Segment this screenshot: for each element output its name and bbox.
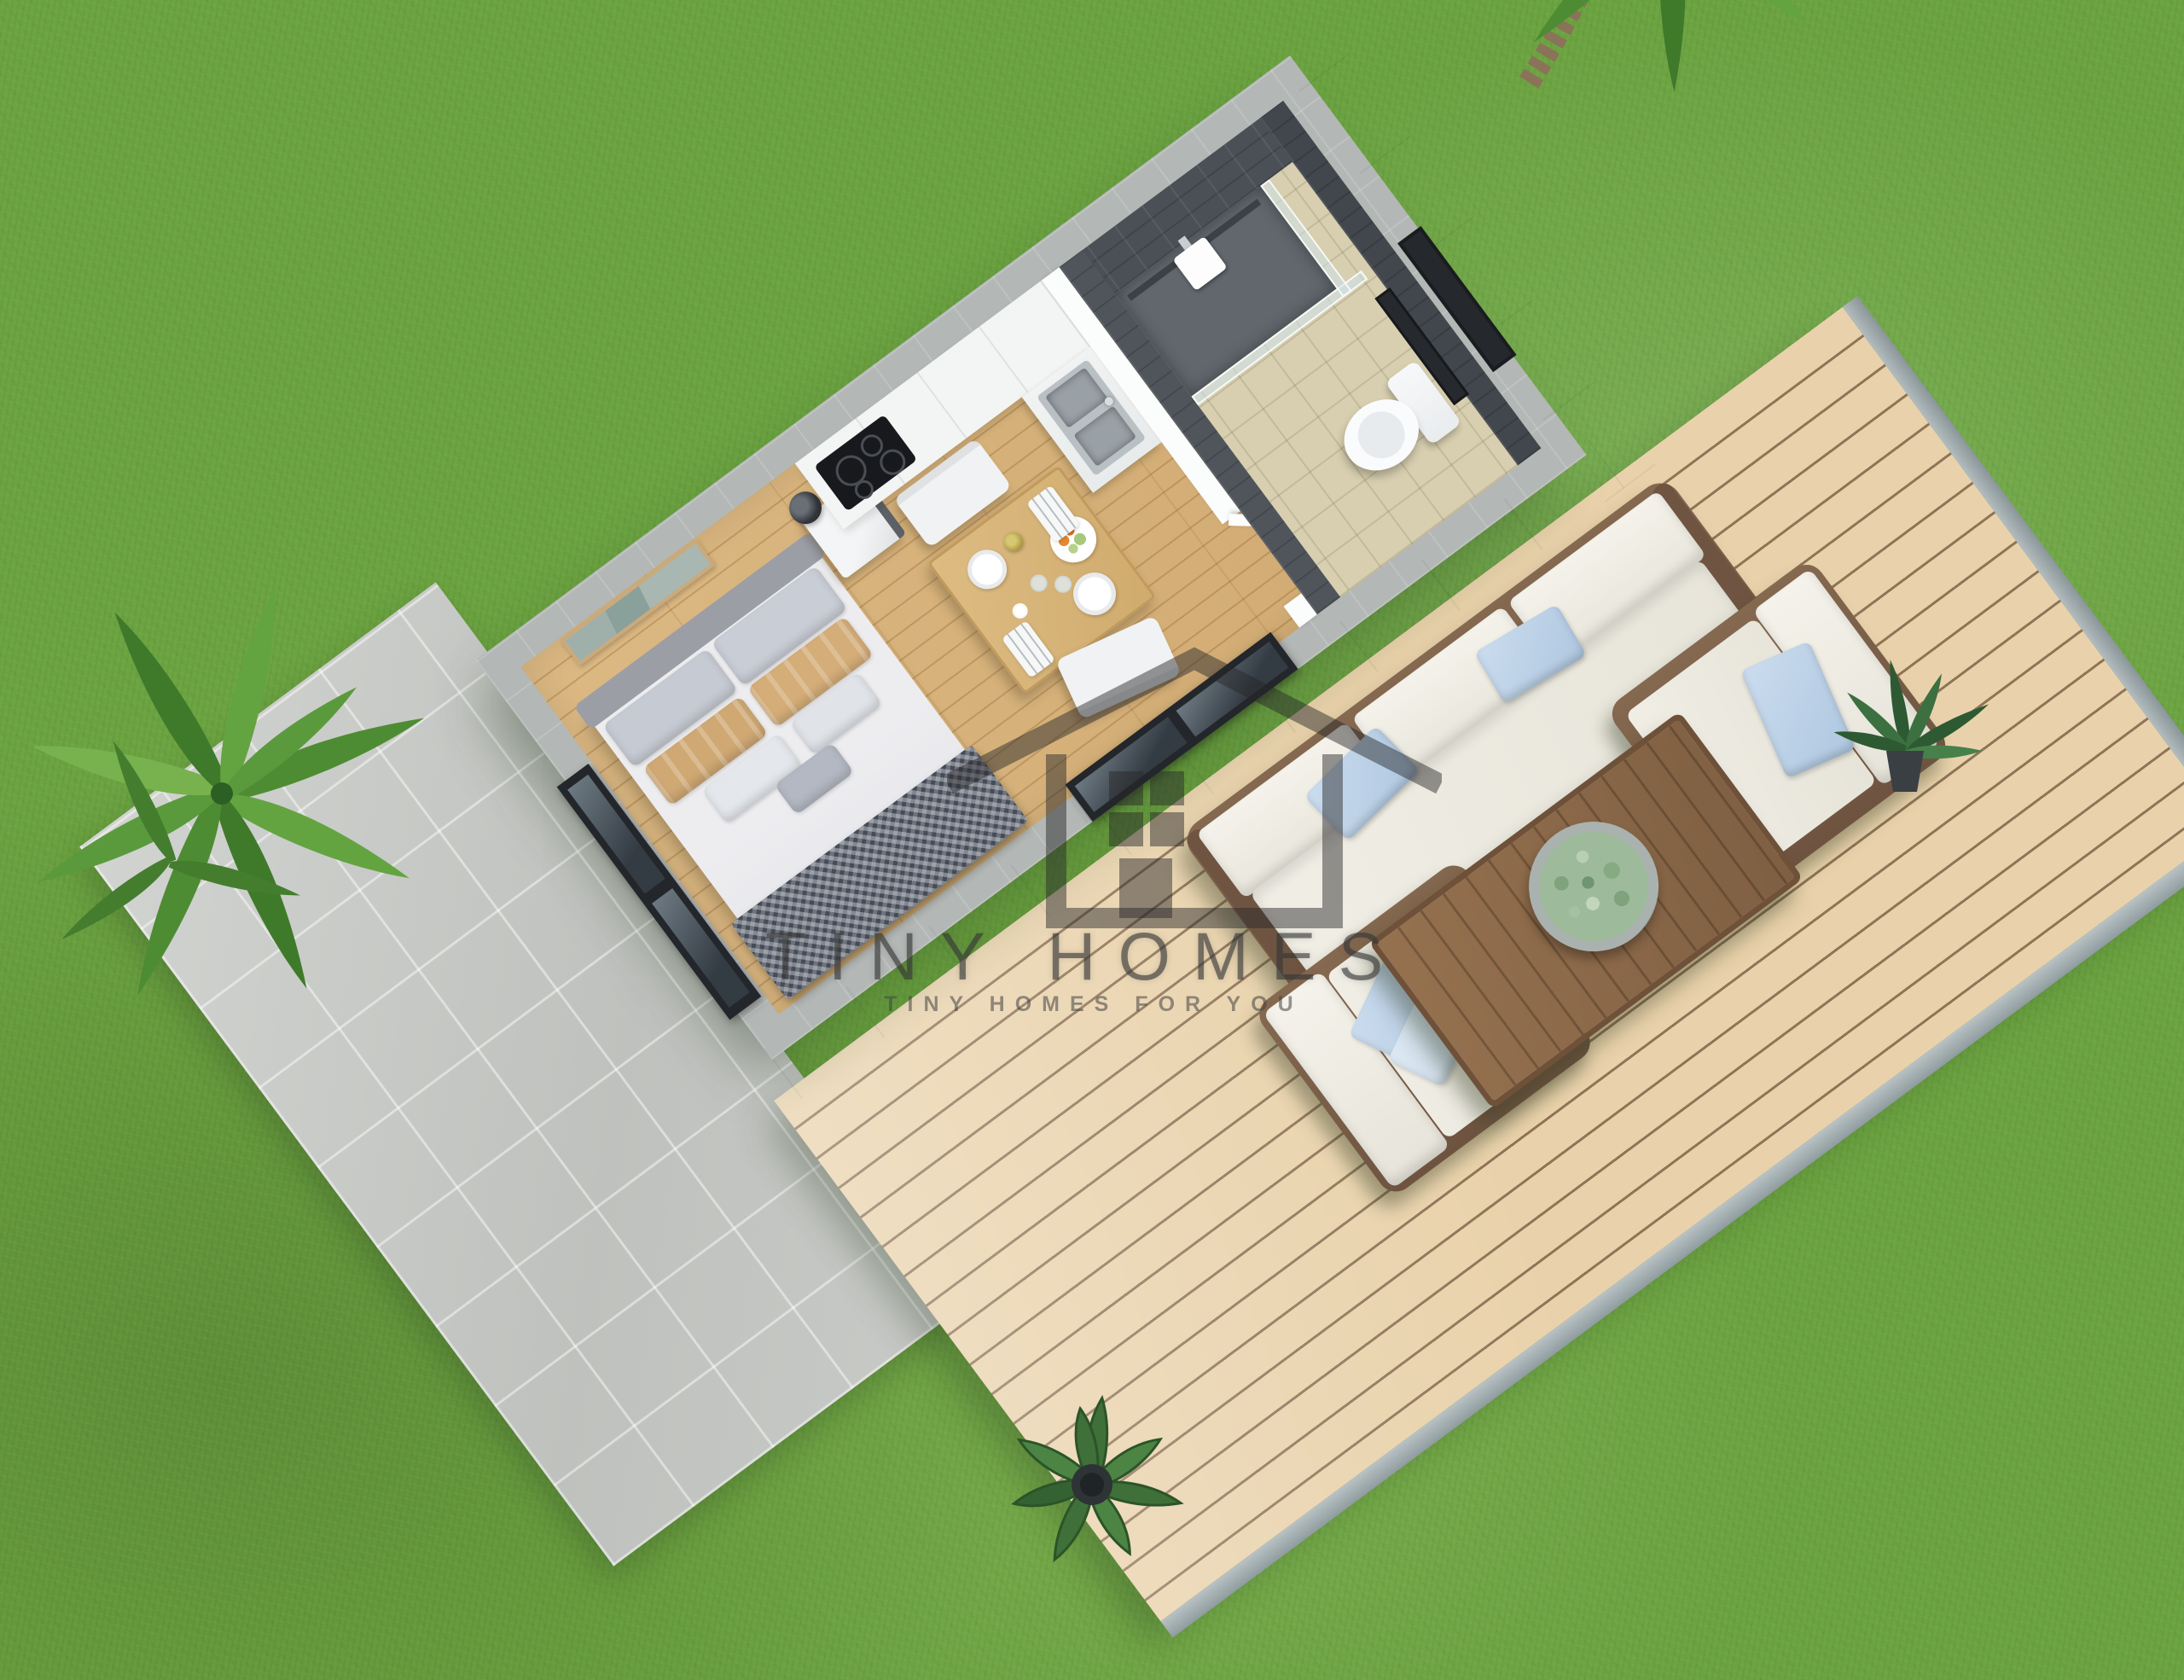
plant-pot [1886,751,1924,792]
palm-crown [27,584,432,997]
bottle [1000,528,1026,555]
palm-trunk [1527,0,1625,85]
palm-crown [1491,0,1868,92]
succulent-arrangement [1518,811,1670,963]
candle [1009,600,1031,621]
plant-leaves [1012,1397,1182,1563]
potted-plant-deck-edge [1804,589,2018,836]
plate [960,542,1014,596]
potted-plant-deck-corner [955,1348,1228,1621]
cutlery-set [1002,620,1055,678]
plant-leaves [1833,659,1995,764]
palm-tree-left [0,512,563,1143]
drinking-glass [1027,571,1051,595]
round-planter [1503,796,1685,978]
drinking-glass [1051,573,1075,596]
plate [1065,564,1124,624]
backyard-render-scene: TINY HOMES TINY HOMES FOR YOU [0,0,2184,1680]
palm-tree-top-right [1314,0,2030,328]
